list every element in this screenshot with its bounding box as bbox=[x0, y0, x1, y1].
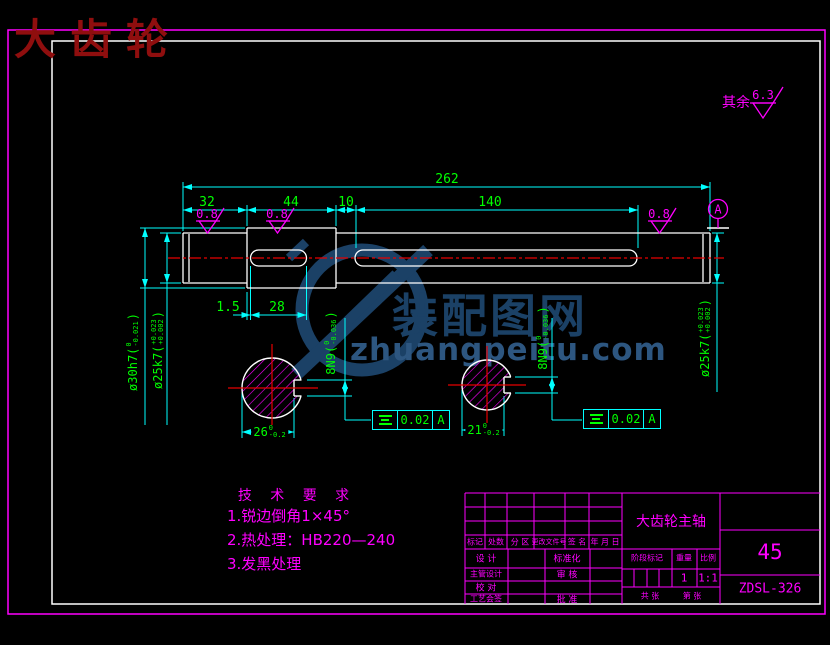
tb-approve: 批 准 bbox=[557, 593, 578, 606]
tb-scale-label: 比例 bbox=[700, 553, 716, 564]
tb-sheets: 共 张 bbox=[641, 591, 660, 602]
roughness-value-1: 0.8 bbox=[196, 207, 218, 221]
roughness-general-value: 6.3 bbox=[752, 88, 774, 102]
label-keyway-8n9-left: 8N9(0-0.036) bbox=[324, 311, 338, 374]
symmetry-icon bbox=[583, 409, 609, 429]
tb-hdr-zone: 分 区 bbox=[511, 537, 530, 548]
tb-audit: 审 核 bbox=[557, 568, 578, 581]
tolerance-datum: A bbox=[432, 410, 450, 430]
tolerance-frame-left: 0.02 A bbox=[372, 410, 450, 430]
tolerance-frame-right: 0.02 A bbox=[583, 409, 661, 429]
label-keyway-8n9-right: 8N9(0-0.036) bbox=[536, 306, 550, 369]
datum-letter: A bbox=[714, 203, 722, 217]
tb-standard: 标准化 bbox=[553, 552, 580, 565]
tb-hdr-count: 处数 bbox=[488, 537, 504, 548]
tb-process-sign: 工艺会签 bbox=[470, 594, 502, 605]
tb-proof: 校 对 bbox=[476, 581, 497, 594]
tb-design: 设 计 bbox=[476, 552, 497, 565]
roughness-value-2: 0.8 bbox=[266, 207, 288, 221]
label-dia30h7-main: ø30h7( bbox=[126, 348, 140, 391]
dim-text-overall: 262 bbox=[435, 172, 458, 187]
symmetry-icon bbox=[372, 410, 398, 430]
tb-part-name: 大齿轮主轴 bbox=[636, 511, 706, 531]
roughness-general-prefix: 其余 bbox=[722, 94, 750, 111]
tb-hdr-sign: 签 名 bbox=[568, 537, 587, 548]
tolerance-value: 0.02 bbox=[397, 410, 433, 430]
label-dia25k7-right: ø25k7(+0.023+0.002) bbox=[698, 299, 712, 377]
tech-requirement-1: 1.锐边倒角1×45° bbox=[227, 505, 350, 526]
tb-weight-label: 重量 bbox=[676, 553, 692, 564]
label-width-21: 210-0.2 bbox=[465, 423, 502, 437]
tolerance-datum: A bbox=[643, 409, 661, 429]
tb-weight-value: 1 bbox=[681, 572, 688, 585]
tb-drawing-no: ZDSL-326 bbox=[739, 582, 802, 597]
tb-sheet-no: 第 张 bbox=[683, 591, 702, 602]
roughness-value-3: 0.8 bbox=[648, 207, 670, 221]
datum-symbol: A bbox=[709, 200, 728, 229]
cad-drawing-canvas: 装配图网 zhuangpeitu.com bbox=[0, 0, 830, 645]
label-dia25k7-left: ø25k7(+0.023+0.002) bbox=[151, 311, 165, 389]
tech-requirement-2: 2.热处理：HB220—240 bbox=[227, 529, 395, 550]
label-dia30h7-lower: -0.021 bbox=[133, 321, 140, 346]
label-width-26: 260-0.2 bbox=[251, 425, 288, 439]
tb-hdr-file: 更改文件号 bbox=[532, 537, 567, 547]
tb-hdr-date: 年 月 日 bbox=[590, 537, 619, 548]
tb-hdr-mark: 标记 bbox=[467, 537, 483, 548]
dim-text-28: 28 bbox=[269, 300, 285, 315]
tech-requirements-heading: 技 术 要 求 bbox=[238, 485, 356, 505]
label-dia30h7: ø30h7(0-0.021) bbox=[126, 313, 140, 391]
dimension-texts: 262 32 44 10 140 1.5 28 bbox=[199, 172, 502, 315]
dim-text-1-5: 1.5 bbox=[216, 300, 239, 315]
drawing-title: 大齿轮 bbox=[14, 6, 182, 67]
tb-material: 45 bbox=[757, 540, 782, 564]
dim-text-10: 10 bbox=[338, 195, 354, 210]
tb-chief-design: 主管设计 bbox=[470, 569, 502, 580]
tech-requirement-3: 3.发黑处理 bbox=[227, 553, 301, 574]
dim-text-140: 140 bbox=[478, 195, 501, 210]
tb-scale-value: 1:1 bbox=[698, 572, 718, 585]
tolerance-value: 0.02 bbox=[608, 409, 644, 429]
tb-stage-label: 阶段标记 bbox=[631, 553, 663, 564]
